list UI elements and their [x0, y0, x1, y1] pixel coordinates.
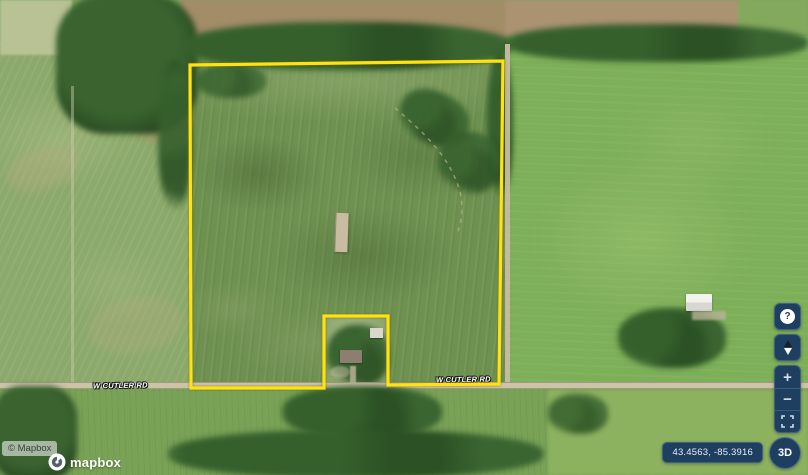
coordinates-readout: 43.4563, -85.3916: [662, 442, 763, 463]
farmstead-barn: [686, 294, 712, 311]
zoom-out-icon: −: [783, 391, 792, 408]
house: [340, 350, 362, 363]
mapbox-wordmark: mapbox: [70, 455, 121, 470]
tree-row-northeast: [505, 24, 808, 62]
barn-structure: [334, 213, 348, 252]
tree-band-bottom: [168, 430, 543, 475]
mapbox-logo-icon: [48, 453, 66, 471]
driveway: [350, 366, 356, 384]
road-label-cutler-east: W CUTLER RD: [436, 375, 491, 385]
zoom-out-button[interactable]: −: [775, 388, 800, 410]
tree-band-top: [182, 22, 512, 70]
tree-cluster-south: [548, 394, 608, 434]
tree-cluster-parcel: [196, 64, 266, 98]
mapbox-logo-link[interactable]: mapbox: [48, 453, 121, 471]
road-label-cutler-west: W CUTLER RD: [93, 381, 148, 391]
road-vertical-east: [505, 44, 510, 386]
map-canvas[interactable]: W CUTLER RD W CUTLER RD ? + − 43.4563, -…: [0, 0, 808, 475]
zoom-in-button[interactable]: +: [775, 366, 800, 388]
fullscreen-icon: [781, 415, 794, 428]
road-vertical-west: [71, 86, 74, 386]
compass-button[interactable]: [774, 334, 801, 361]
help-icon: ?: [780, 309, 795, 324]
help-button[interactable]: ?: [774, 303, 801, 330]
tree-strip-parcel-left: [158, 60, 192, 210]
fullscreen-button[interactable]: [775, 410, 800, 432]
farmstead-driveway: [692, 311, 726, 320]
tree-cluster-parcel: [438, 132, 500, 194]
zoom-in-icon: +: [783, 369, 792, 386]
shed: [370, 328, 383, 338]
compass-south-icon: [784, 348, 792, 355]
3d-label: 3D: [778, 447, 792, 459]
driveway-apron: [330, 366, 350, 378]
zoom-control-group: + −: [774, 365, 801, 433]
compass-north-icon: [784, 340, 792, 347]
3d-toggle-button[interactable]: 3D: [769, 437, 801, 469]
